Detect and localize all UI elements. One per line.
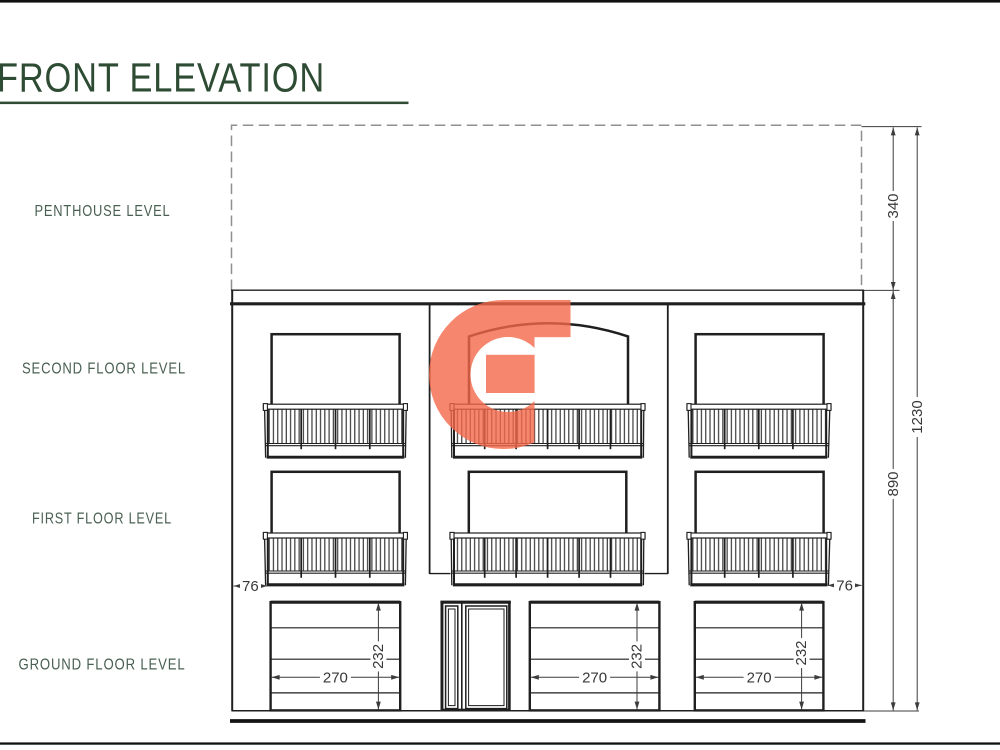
- svg-text:GROUND FLOOR LEVEL: GROUND FLOOR LEVEL: [19, 657, 186, 674]
- svg-text:FIRST FLOOR LEVEL: FIRST FLOOR LEVEL: [32, 511, 172, 528]
- svg-text:340: 340: [885, 193, 902, 218]
- svg-text:76: 76: [836, 578, 853, 595]
- svg-text:232: 232: [370, 644, 387, 669]
- svg-text:SECOND FLOOR LEVEL: SECOND FLOOR LEVEL: [22, 360, 186, 377]
- svg-text:270: 270: [582, 670, 607, 687]
- svg-text:PENTHOUSE LEVEL: PENTHOUSE LEVEL: [35, 203, 171, 220]
- svg-text:232: 232: [629, 644, 646, 669]
- svg-text:890: 890: [885, 471, 902, 496]
- svg-text:270: 270: [747, 670, 772, 687]
- svg-text:1230: 1230: [909, 400, 926, 433]
- svg-text:232: 232: [793, 640, 810, 665]
- svg-text:270: 270: [323, 670, 348, 687]
- svg-text:76: 76: [242, 578, 259, 595]
- svg-text:FRONT ELEVATION: FRONT ELEVATION: [0, 55, 325, 101]
